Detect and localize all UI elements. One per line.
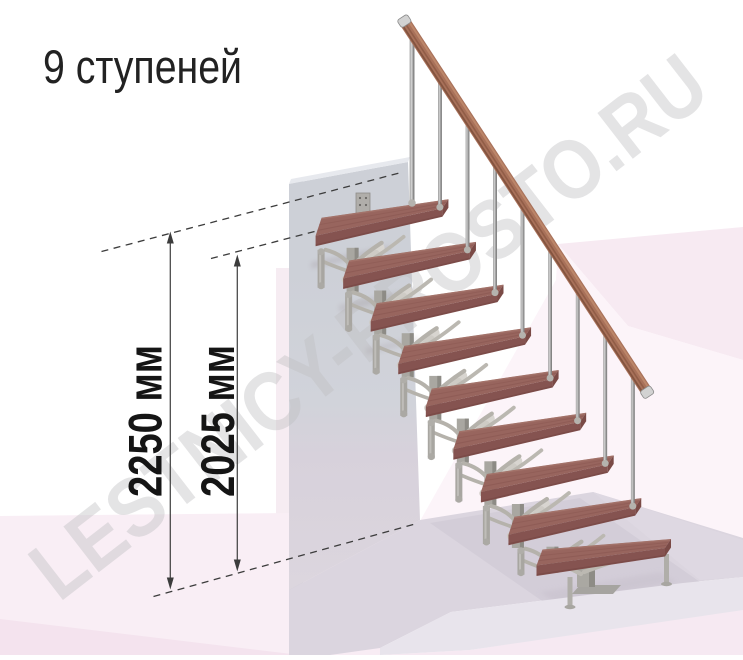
svg-text:2250 мм: 2250 мм xyxy=(119,345,172,497)
svg-text:9 ступеней: 9 ступеней xyxy=(43,40,242,93)
svg-text:2025 мм: 2025 мм xyxy=(191,345,244,497)
